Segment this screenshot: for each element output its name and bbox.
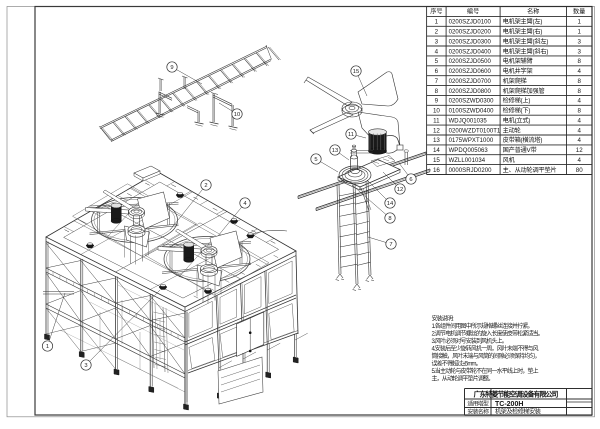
svg-text:0200SZJD0200: 0200SZJD0200 (449, 30, 492, 36)
svg-text:4: 4 (577, 68, 581, 75)
svg-text:0175WPXT1000: 0175WPXT1000 (449, 138, 494, 144)
svg-text:国产普通V带: 国产普通V带 (503, 146, 537, 154)
svg-text:8: 8 (577, 108, 581, 115)
svg-text:8: 8 (388, 216, 391, 222)
svg-text:误差不得超过±5mm。: 误差不得超过±5mm。 (432, 359, 481, 367)
svg-text:13: 13 (433, 137, 440, 144)
svg-text:12: 12 (397, 187, 403, 193)
svg-text:1: 1 (46, 344, 49, 350)
svg-text:机架及检修梯安装: 机架及检修梯安装 (495, 408, 541, 416)
svg-text:电机(立式): 电机(立式) (503, 116, 531, 124)
svg-text:16: 16 (433, 167, 440, 174)
svg-text:0200SZJD0700: 0200SZJD0700 (449, 79, 492, 85)
svg-text:0000SRJD0200: 0000SRJD0200 (449, 168, 493, 174)
svg-text:电机架主臂(斜左): 电机架主臂(斜左) (503, 37, 549, 45)
svg-text:8: 8 (577, 58, 581, 65)
svg-text:机架爬梯: 机架爬梯 (503, 77, 527, 85)
svg-text:0200SZJD0800: 0200SZJD0800 (449, 89, 492, 95)
svg-text:6: 6 (435, 68, 439, 75)
svg-text:5: 5 (435, 58, 439, 65)
svg-text:WPDQ005063: WPDQ005063 (449, 148, 489, 154)
svg-text:2: 2 (435, 29, 439, 36)
svg-text:6: 6 (409, 177, 412, 183)
svg-text:15: 15 (353, 69, 359, 75)
svg-text:11: 11 (348, 132, 354, 138)
svg-text:4: 4 (577, 157, 581, 164)
svg-text:0200SZJD0100: 0200SZJD0100 (449, 20, 492, 26)
svg-text:3: 3 (84, 363, 87, 369)
svg-text:主，从动轮调平垫片调整。: 主，从动轮调平垫片调整。 (432, 374, 494, 382)
svg-text:2: 2 (204, 183, 207, 189)
svg-text:1: 1 (577, 19, 581, 26)
svg-text:编号: 编号 (467, 8, 479, 16)
svg-text:名称: 名称 (527, 8, 539, 16)
svg-text:WDJQ001035: WDJQ001035 (449, 118, 488, 124)
svg-text:8: 8 (577, 88, 581, 95)
svg-text:检修梯(下): 检修梯(下) (503, 107, 531, 115)
svg-text:13: 13 (332, 148, 338, 154)
svg-text:12: 12 (433, 127, 440, 134)
svg-text:10: 10 (234, 112, 240, 118)
svg-text:4: 4 (577, 117, 581, 124)
svg-text:安装名称: 安装名称 (467, 407, 489, 415)
svg-text:9: 9 (435, 98, 439, 105)
svg-text:80: 80 (576, 167, 583, 174)
svg-text:11: 11 (433, 117, 440, 124)
svg-text:序号: 序号 (430, 8, 442, 16)
svg-text:3: 3 (435, 38, 439, 45)
svg-text:4: 4 (435, 48, 439, 55)
svg-text:0200SZJD0400: 0200SZJD0400 (449, 49, 492, 55)
svg-text:10: 10 (433, 108, 440, 115)
svg-text:0200SZJD0300: 0200SZJD0300 (449, 39, 492, 45)
svg-text:检修梯(上): 检修梯(上) (503, 97, 531, 105)
svg-text:1: 1 (577, 29, 581, 36)
svg-text:主、从动轮调平垫片: 主、从动轮调平垫片 (503, 166, 557, 174)
svg-text:4: 4 (577, 98, 581, 105)
svg-text:主动轮: 主动轮 (503, 126, 521, 134)
svg-text:0200SZWD0300: 0200SZWD0300 (449, 99, 495, 105)
svg-text:3: 3 (577, 48, 581, 55)
svg-text:安装说明:: 安装说明: (432, 314, 455, 322)
svg-text:14: 14 (433, 147, 440, 154)
svg-text:7: 7 (435, 78, 439, 85)
svg-text:1.各组件间用图中所示规格螺丝连接并拧紧。: 1.各组件间用图中所示规格螺丝连接并拧紧。 (432, 322, 533, 330)
svg-text:12: 12 (576, 147, 583, 154)
svg-text:4: 4 (577, 137, 581, 144)
svg-text:0200SZJD0600: 0200SZJD0600 (449, 69, 492, 75)
svg-text:电机井字架: 电机井字架 (503, 67, 533, 75)
svg-text:4.安装后至少旋转风机一周，风叶末端不得与风: 4.安装后至少旋转风机一周，风叶末端不得与风 (432, 344, 539, 352)
svg-text:风机: 风机 (503, 156, 516, 164)
svg-text:3.风叶必须对号安装到风机头上。: 3.风叶必须对号安装到风机头上。 (432, 337, 507, 345)
svg-text:广东特菱节能空调设备有限公司: 广东特菱节能空调设备有限公司 (474, 389, 559, 398)
svg-text:电机架辅臂: 电机架辅臂 (503, 57, 533, 65)
svg-text:5: 5 (314, 157, 317, 163)
svg-text:14: 14 (387, 201, 394, 207)
svg-text:1: 1 (435, 19, 439, 26)
svg-text:8: 8 (435, 88, 439, 95)
svg-text:机架爬梯加强管: 机架爬梯加强管 (503, 87, 545, 95)
svg-text:2.调节电机调节螺丝的旋入长度使皮带松紧适当。: 2.调节电机调节螺丝的旋入长度使皮带松紧适当。 (432, 329, 543, 337)
svg-text:皮带箱(横流塔): 皮带箱(横流塔) (503, 136, 543, 144)
svg-text:0200SZJD0500: 0200SZJD0500 (449, 59, 492, 65)
svg-text:0100SZWD0400: 0100SZWD0400 (449, 109, 495, 115)
svg-text:适用塔型: 适用塔型 (467, 400, 489, 408)
svg-text:电机架主臂(右): 电机架主臂(右) (503, 28, 543, 36)
svg-text:TC-200H: TC-200H (495, 401, 523, 408)
svg-text:3: 3 (577, 38, 581, 45)
svg-text:0200WZDT0100T1: 0200WZDT0100T1 (449, 128, 501, 134)
svg-text:7: 7 (389, 242, 392, 248)
svg-text:电机架主臂(左): 电机架主臂(左) (503, 18, 543, 26)
svg-text:15: 15 (433, 157, 440, 164)
svg-text:9: 9 (170, 65, 173, 71)
svg-text:8: 8 (577, 78, 581, 85)
svg-text:数量: 数量 (573, 8, 585, 16)
svg-text:4: 4 (577, 127, 581, 134)
svg-text:电机架主臂(斜右): 电机架主臂(斜右) (503, 47, 549, 55)
svg-text:WZLL001034: WZLL001034 (449, 158, 486, 164)
svg-text:筒接触，风叶末端与风筒的间隙必须保持均匀，: 筒接触，风叶末端与风筒的间隙必须保持均匀， (432, 352, 540, 360)
svg-text:5.当主动轮与皮带轮不在同一水平线上时，垫上: 5.当主动轮与皮带轮不在同一水平线上时，垫上 (432, 367, 539, 375)
